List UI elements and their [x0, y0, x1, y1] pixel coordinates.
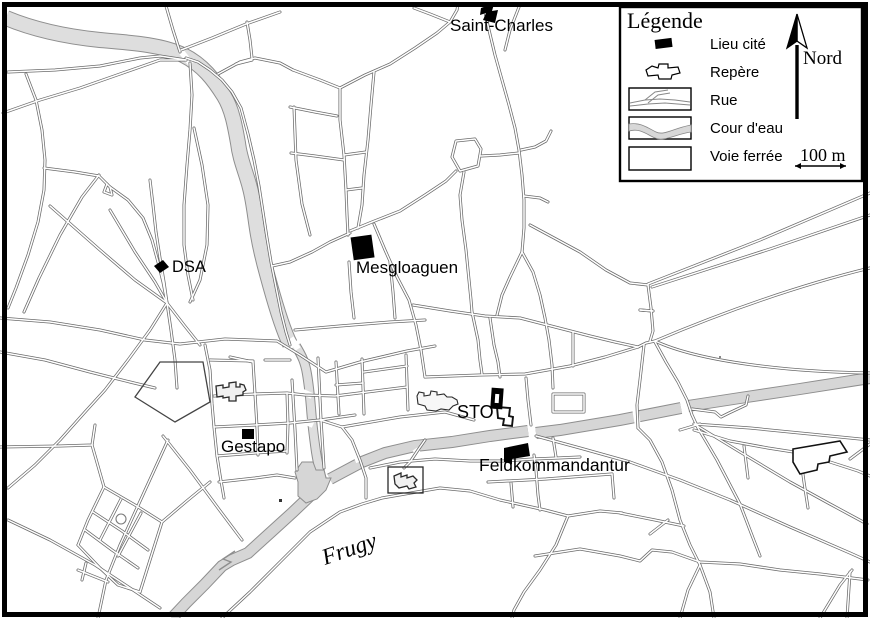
svg-text:Nord: Nord: [803, 48, 843, 69]
svg-text:Lieu cité: Lieu cité: [710, 36, 766, 53]
svg-text:Cour d'eau: Cour d'eau: [710, 120, 783, 137]
svg-text:DSA: DSA: [172, 258, 206, 276]
svg-text:Rue: Rue: [710, 92, 738, 109]
svg-text:Gestapo: Gestapo: [221, 437, 285, 456]
svg-text:Voie ferrée: Voie ferrée: [710, 148, 783, 165]
svg-text:Mesgloaguen: Mesgloaguen: [356, 258, 458, 277]
svg-text:Feldkommandantur: Feldkommandantur: [479, 455, 630, 475]
svg-text:Légende: Légende: [627, 8, 703, 33]
svg-text:100 m: 100 m: [800, 145, 846, 165]
svg-text:Repère: Repère: [710, 64, 759, 81]
svg-text:Saint-Charles: Saint-Charles: [450, 16, 553, 35]
svg-text:STO: STO: [457, 402, 494, 422]
